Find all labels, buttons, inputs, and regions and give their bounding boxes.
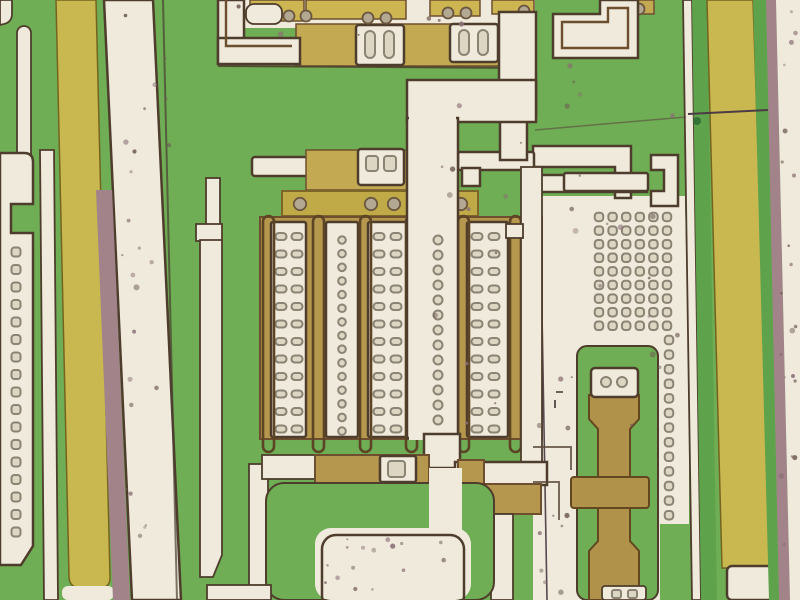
column-via (665, 394, 674, 403)
grid-via (649, 294, 658, 303)
speckle (543, 580, 547, 584)
speckle (465, 362, 468, 365)
speckle (128, 377, 133, 382)
oval-via (292, 268, 303, 275)
via-ring (12, 388, 21, 397)
round-via (338, 345, 346, 353)
speckle (778, 473, 784, 479)
grid-via (595, 267, 604, 276)
speckle (565, 103, 570, 108)
rail-stub (506, 224, 523, 238)
oval-via (391, 338, 402, 345)
via-ring (12, 335, 21, 344)
bus-right-tail (500, 118, 527, 160)
speckle (567, 63, 572, 68)
via-ring (12, 265, 21, 274)
oval-via (292, 286, 303, 293)
speckle (790, 328, 796, 334)
oval-via (472, 321, 483, 328)
oval-via (276, 251, 287, 258)
grid-via (608, 308, 617, 317)
speckle (335, 576, 340, 581)
speckle (402, 568, 406, 572)
grid-via (636, 254, 645, 262)
oval-via (391, 356, 402, 363)
speckle (361, 546, 365, 550)
header-slot-pad (358, 149, 404, 185)
grid-via (636, 226, 645, 235)
grid-via (608, 226, 617, 235)
speckle (459, 21, 464, 26)
via-column (12, 248, 21, 537)
oval-via (374, 408, 385, 415)
oval-via (292, 356, 303, 363)
speckle (571, 376, 573, 378)
speckle (132, 330, 136, 334)
grid-via (622, 322, 631, 331)
speckle (353, 587, 357, 591)
speckle (358, 34, 360, 36)
oval-via (276, 338, 287, 345)
oval-via (276, 303, 287, 310)
inner-pad (315, 528, 471, 600)
speckle (465, 422, 468, 425)
bottom-bar (207, 585, 271, 600)
grid-via (608, 322, 617, 331)
oval-via (489, 268, 500, 275)
speckle (784, 376, 786, 378)
grid-via (649, 322, 658, 331)
speckle (125, 488, 127, 490)
oval-via (276, 233, 287, 240)
contact-bump (461, 8, 472, 19)
oval-via (472, 233, 483, 240)
speckle (143, 107, 146, 110)
oval-via (276, 268, 287, 275)
oval-via (292, 426, 303, 433)
via-ring (12, 318, 21, 327)
slot-via-pad (450, 24, 498, 62)
via-ring (12, 370, 21, 379)
grid-via (608, 254, 617, 262)
resistor-top-pad (591, 368, 638, 397)
speckle (539, 569, 543, 573)
contact-pad (246, 4, 282, 24)
oval-via (472, 303, 483, 310)
speckle (794, 379, 797, 382)
speckle (558, 376, 563, 381)
speckle (780, 353, 783, 356)
speckle (793, 31, 798, 36)
oval-via (374, 268, 385, 275)
grid-via (595, 226, 604, 235)
speckle (371, 548, 376, 553)
oval-via (472, 426, 483, 433)
speckle (129, 170, 132, 173)
speckle (569, 207, 574, 212)
oval-via (292, 251, 303, 258)
oval-via (292, 373, 303, 380)
speckle (648, 277, 651, 280)
speckle (154, 386, 159, 391)
via-ring (12, 493, 21, 502)
contact-bump (381, 13, 392, 24)
column-via (665, 438, 674, 447)
speckle (792, 455, 797, 460)
bus-via (434, 296, 443, 305)
grid-via (622, 294, 631, 303)
grid-via (663, 254, 672, 262)
resistor-cell (571, 346, 658, 600)
grid-via (649, 240, 658, 249)
grid-via (622, 240, 631, 249)
speckle (152, 82, 157, 87)
column-via (665, 336, 674, 345)
oval-via (489, 373, 500, 380)
via-ring (12, 475, 21, 484)
bus-via (434, 416, 443, 425)
speckle (787, 244, 790, 247)
oval-via (391, 251, 402, 258)
oval-via (374, 303, 385, 310)
oval-via (374, 251, 385, 258)
speckle (537, 423, 542, 428)
oval-via (374, 356, 385, 363)
oval-via (374, 373, 385, 380)
column-via (665, 496, 674, 505)
round-via (338, 400, 346, 408)
oval-via (391, 321, 402, 328)
speckle (129, 492, 133, 496)
speckle (794, 325, 798, 329)
speckle (572, 81, 575, 84)
round-via (338, 277, 346, 285)
column-via (665, 365, 674, 374)
speckle (324, 581, 327, 584)
round-via (338, 304, 346, 312)
speckle (648, 315, 651, 318)
speckle (630, 424, 633, 427)
via-ring (12, 248, 21, 257)
speckle (278, 31, 284, 37)
oval-via (472, 338, 483, 345)
speckle (558, 590, 563, 595)
metal-stripe (40, 150, 58, 600)
speckle (792, 174, 796, 178)
grid-via (663, 308, 672, 317)
speckle (433, 313, 438, 318)
die-micrograph (0, 0, 800, 600)
array-left-rail (196, 178, 222, 577)
via-ring (12, 300, 21, 309)
gate-bump (365, 198, 377, 210)
speckle (780, 292, 782, 294)
speckle (789, 40, 794, 45)
oval-via (374, 338, 385, 345)
speckle (538, 531, 542, 535)
via-ring (12, 458, 21, 467)
grid-via (649, 267, 658, 276)
speckle (573, 228, 579, 234)
oval-via (489, 408, 500, 415)
die-micrograph-canvas (0, 0, 800, 600)
right-bar (564, 173, 648, 191)
header-bar (252, 157, 308, 176)
grid-via (595, 213, 604, 222)
speckle (124, 14, 128, 18)
grid-via (663, 294, 672, 303)
grid-via (622, 213, 631, 222)
speckle (447, 192, 453, 198)
contact-bump (443, 8, 454, 19)
speckle (618, 224, 624, 230)
speckle (143, 526, 146, 529)
grid-via (622, 254, 631, 262)
speckle (503, 194, 508, 199)
speckle (552, 515, 554, 517)
bus-via (434, 386, 443, 395)
speckle (164, 97, 167, 100)
speckle (790, 10, 793, 13)
slot-via-pad (356, 25, 404, 65)
grid-via (608, 281, 617, 290)
bus-via (434, 251, 443, 260)
speckle (783, 64, 786, 67)
grid-via (622, 308, 631, 317)
grid-via (608, 240, 617, 249)
grid-via (622, 267, 631, 276)
round-via (338, 236, 346, 244)
speckle (346, 538, 348, 540)
oval-via (276, 373, 287, 380)
stripe-end-metal (62, 586, 114, 600)
oval-via (489, 251, 500, 258)
speckle (791, 374, 795, 378)
array-right-rail (521, 167, 542, 463)
speckle (427, 16, 432, 21)
bus-via (434, 341, 443, 350)
round-via (338, 373, 346, 381)
oval-via (276, 408, 287, 415)
speckle (579, 175, 581, 177)
oval-via (292, 321, 303, 328)
oval-via (472, 408, 483, 415)
via-ring (12, 440, 21, 449)
grid-via (649, 308, 658, 317)
via-ring (12, 528, 21, 537)
grid-via (663, 226, 672, 235)
round-via (338, 386, 346, 394)
grid-via (663, 322, 672, 331)
grid-via (649, 254, 658, 262)
oval-via (472, 373, 483, 380)
oval-via (391, 408, 402, 415)
oval-via (391, 233, 402, 240)
oval-via (292, 338, 303, 345)
grid-via (636, 267, 645, 276)
column-via (665, 380, 674, 389)
column-via (665, 350, 674, 359)
speckle (138, 247, 141, 250)
defect-dot (693, 117, 701, 125)
grid-via (608, 267, 617, 276)
speckle (123, 139, 128, 144)
oval-via (472, 286, 483, 293)
oval-via (374, 391, 385, 398)
contact-bump (301, 11, 312, 22)
grid-via (663, 240, 672, 249)
speckle (134, 284, 140, 290)
oval-via (276, 426, 287, 433)
speckle (495, 252, 498, 255)
source-drain-bars (271, 222, 508, 437)
column-via (665, 453, 674, 462)
oval-via (489, 303, 500, 310)
oval-via (276, 321, 287, 328)
oval-via (489, 426, 500, 433)
oval-via (489, 391, 500, 398)
column-via (665, 467, 674, 476)
speckle (650, 352, 656, 358)
oval-via (374, 286, 385, 293)
oval-via (489, 233, 500, 240)
round-via (338, 427, 346, 435)
speckle (351, 566, 355, 570)
speckle (670, 113, 675, 118)
speckle (578, 92, 582, 96)
speckle (564, 513, 569, 518)
stripe-end-pad (727, 566, 773, 600)
grid-via (636, 294, 645, 303)
grid-via (663, 267, 672, 276)
speckle (561, 525, 564, 528)
speckle (138, 534, 142, 538)
bus-via (434, 266, 443, 275)
bus-via (434, 401, 443, 410)
via-ring (12, 510, 21, 519)
speckle (566, 426, 571, 431)
column-via (665, 482, 674, 491)
speckle (132, 149, 136, 153)
oval-via (292, 391, 303, 398)
round-via (338, 291, 346, 299)
speckle (127, 219, 131, 223)
gate-bump (388, 198, 400, 210)
oval-via (472, 251, 483, 258)
round-via (338, 332, 346, 340)
oval-via (391, 268, 402, 275)
bus-jog (407, 80, 536, 122)
oval-via (292, 303, 303, 310)
speckle (385, 537, 390, 542)
bus-via (434, 281, 443, 290)
speckle (439, 541, 443, 545)
round-via (338, 250, 346, 258)
grid-via (608, 213, 617, 222)
bus-via (434, 371, 443, 380)
oval-via (391, 373, 402, 380)
speckle (789, 263, 792, 266)
oval-via (472, 391, 483, 398)
speckle (167, 143, 171, 147)
left-stripes (0, 0, 181, 600)
contact-bump (284, 11, 295, 22)
round-via (338, 318, 346, 326)
grid-via (622, 281, 631, 290)
bus-into-pad (429, 468, 462, 538)
oval-via (391, 286, 402, 293)
speckle (675, 333, 680, 338)
speckle (237, 4, 241, 8)
oval-via (276, 391, 287, 398)
grid-via (636, 213, 645, 222)
round-via (338, 264, 346, 272)
via-ring (12, 353, 21, 362)
grid-via (595, 240, 604, 249)
oval-via (292, 233, 303, 240)
oval-via (292, 408, 303, 415)
grid-via (649, 281, 658, 290)
grid-via (636, 240, 645, 249)
grid-via (663, 281, 672, 290)
speckle (450, 166, 455, 171)
bus-via (434, 236, 443, 245)
contact-bump (363, 13, 374, 24)
oval-via (489, 356, 500, 363)
oval-via (391, 426, 402, 433)
grid-via (636, 322, 645, 331)
via-ring (12, 405, 21, 414)
oval-via (391, 391, 402, 398)
via-ring (12, 423, 21, 432)
grid-via (636, 281, 645, 290)
green-sliver (660, 524, 690, 600)
grid-via (595, 322, 604, 331)
speckle (606, 223, 609, 226)
column-via (665, 423, 674, 432)
oval-via (391, 303, 402, 310)
speckle (371, 588, 374, 591)
bus-via (434, 356, 443, 365)
grid-via (595, 308, 604, 317)
corner-metal-sliver (0, 0, 12, 25)
speckle (783, 543, 786, 546)
grid-via (636, 308, 645, 317)
speckle (658, 366, 662, 370)
pad-ring (601, 377, 611, 387)
grid-via (595, 294, 604, 303)
resistor-bottom-pad (602, 586, 646, 600)
speckle (129, 403, 133, 407)
bus-via (434, 326, 443, 335)
gate-bump (294, 198, 306, 210)
via-ring (12, 283, 21, 292)
speckle (494, 402, 496, 404)
band-via-pad (380, 456, 416, 482)
poly-rect (430, 0, 480, 16)
oval-via (276, 356, 287, 363)
grid-via (649, 226, 658, 235)
pad-ring (617, 377, 627, 387)
speckle (520, 142, 522, 144)
speckle (326, 564, 329, 567)
oval-via (489, 286, 500, 293)
oval-via (374, 426, 385, 433)
speckle (441, 558, 446, 563)
speckle (400, 542, 403, 545)
grid-via (595, 254, 604, 262)
speckle (150, 260, 154, 264)
